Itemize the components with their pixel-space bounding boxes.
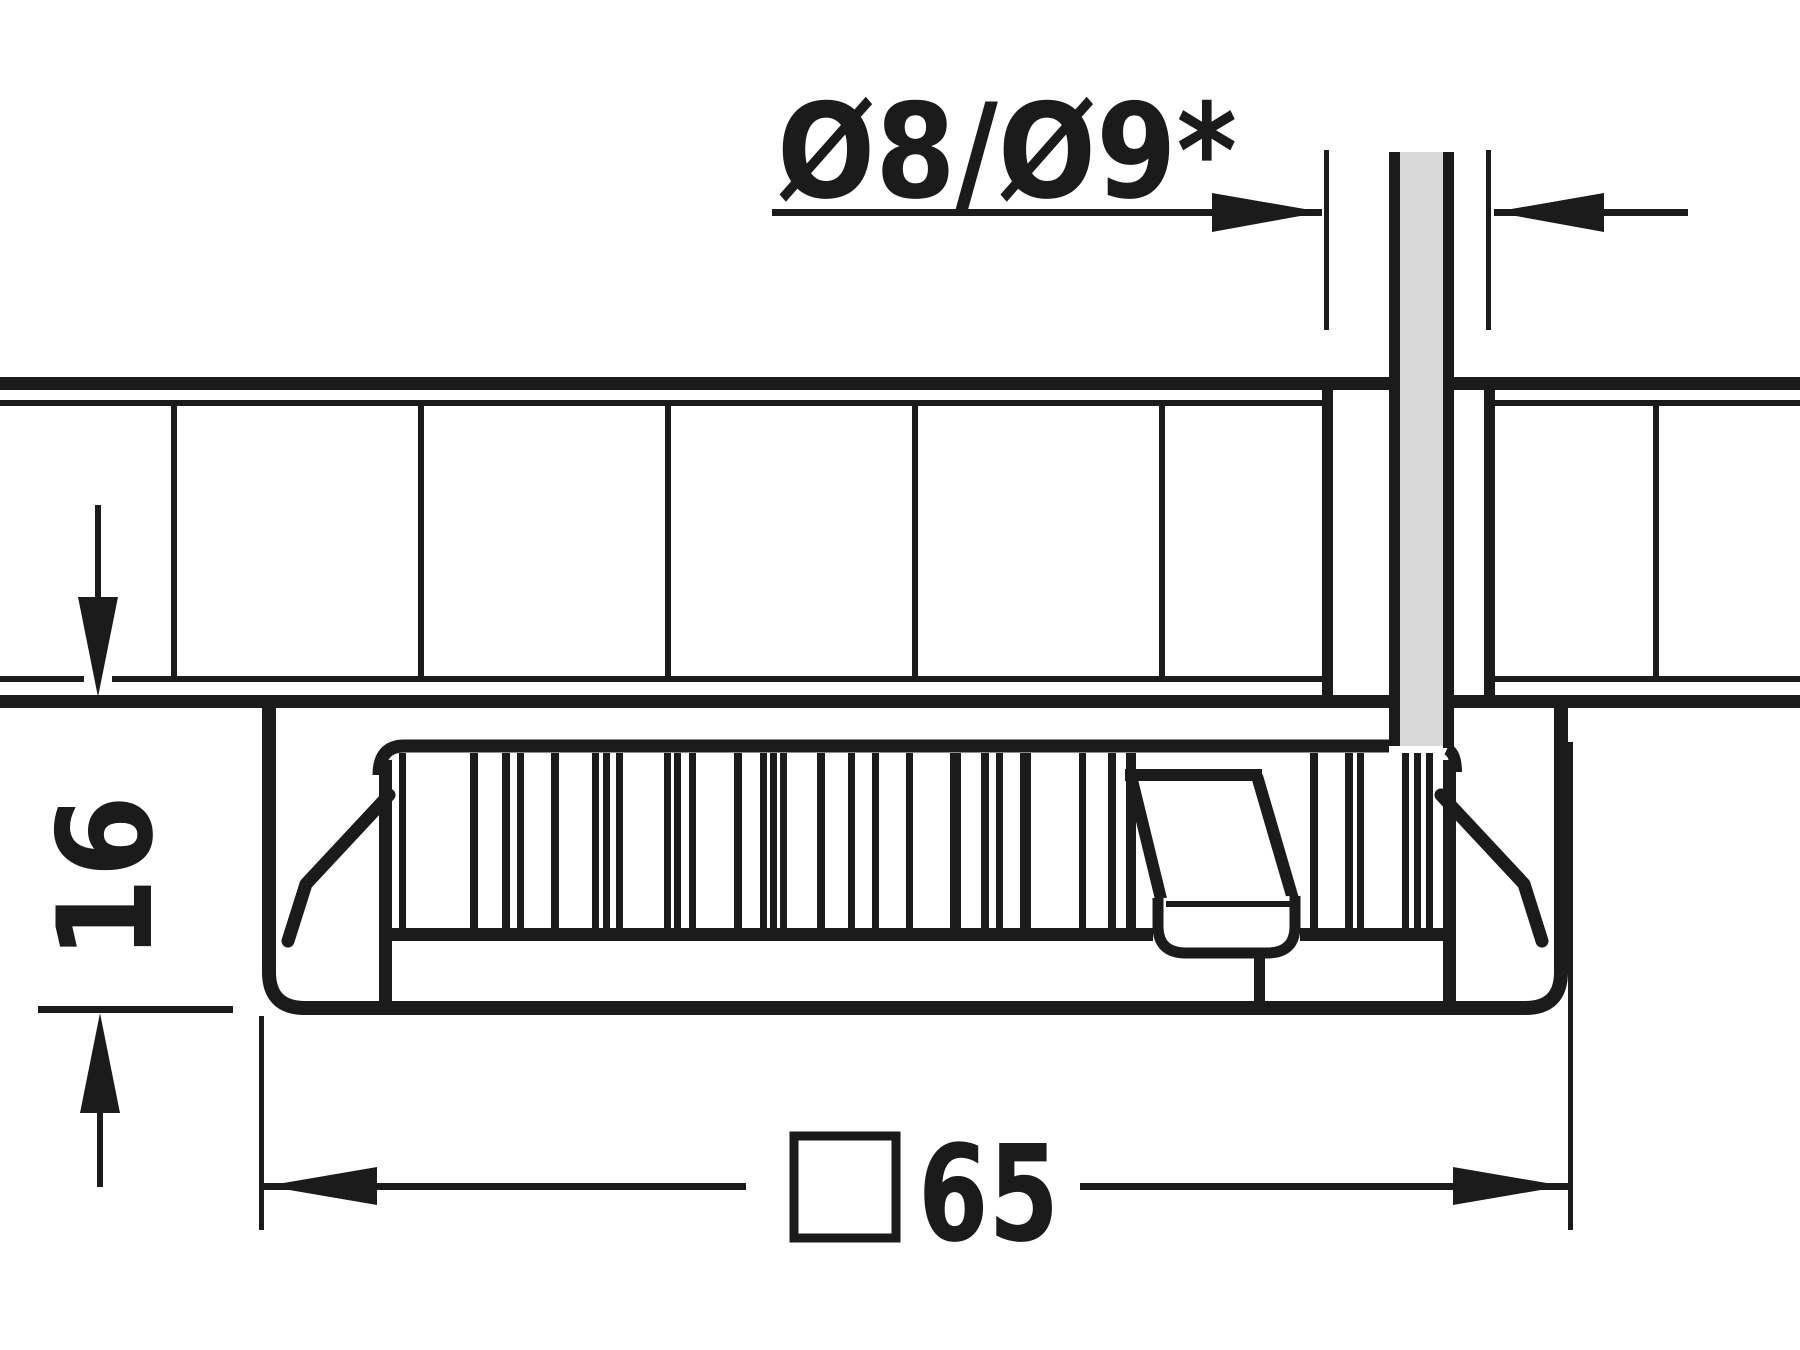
square-symbol-icon (794, 1136, 896, 1238)
rib-line (502, 753, 510, 933)
depth-dimension-text: 16 (29, 795, 182, 960)
board-divider-line (912, 403, 918, 682)
rib-line (1020, 753, 1031, 933)
rib-line (996, 753, 1003, 933)
cable-core (1400, 152, 1443, 746)
hole-dimension-text: Ø8/Ø9* (777, 75, 1237, 228)
board-divider-line (1653, 403, 1659, 682)
cable-edge-left (1389, 152, 1400, 746)
depth-arrow-top-shaft (95, 505, 101, 600)
board-bottom-inner-line-b (112, 676, 1322, 682)
board-bottom-inner-line-a (0, 676, 84, 682)
rib-line (1426, 753, 1433, 933)
rib-line (950, 753, 961, 933)
rib-line (551, 753, 559, 933)
rib-line (592, 753, 599, 933)
rib-line (470, 753, 478, 933)
board-top-inner-line-left (0, 400, 1322, 406)
rib-line (1402, 753, 1409, 933)
board-divider-line (171, 403, 177, 682)
rib-line (399, 753, 406, 933)
cable-edge-right (1443, 152, 1454, 748)
spring-clip-right (1441, 795, 1542, 941)
rib-line (664, 753, 671, 933)
width-extension-line-right (1568, 742, 1573, 1230)
rib-line (817, 753, 825, 933)
lever-foot-step-line (1166, 901, 1290, 907)
board-divider-line (418, 403, 424, 682)
rib-line (906, 753, 913, 933)
technical-drawing-page: Ø8/Ø9* 16 65 (0, 0, 1800, 1350)
board-bottom-surface-left (0, 695, 1390, 708)
depth-arrowhead-up (80, 1013, 120, 1113)
rib-line (517, 753, 524, 933)
rib-line (1414, 753, 1421, 933)
drill-hole-edge-right (1484, 385, 1495, 708)
rib-line (872, 753, 879, 933)
rib-line (770, 753, 777, 933)
board-divider-line (665, 403, 671, 682)
depth-extension-line-bottom (38, 1006, 233, 1013)
rib-line (848, 753, 855, 933)
rib-line (1079, 753, 1086, 933)
width-arrowhead-left (266, 1167, 377, 1205)
mounting-depth-dimension: 16 (29, 505, 233, 1187)
rib-line (616, 753, 623, 933)
board-bottom-surface-right (1454, 695, 1800, 708)
board-top-inner-line-right (1494, 400, 1800, 406)
connector-lever (1125, 769, 1295, 1004)
rib-line (780, 753, 787, 933)
rib-line (603, 753, 610, 933)
luminaire-fixture (269, 706, 1561, 1008)
lever-foot-stem (1254, 952, 1265, 1004)
board-top-surface-left (0, 377, 1390, 390)
board-divider-line (1159, 403, 1165, 682)
hole-diameter-dimension: Ø8/Ø9* (772, 75, 1688, 330)
rib-line (1108, 753, 1116, 933)
board-top-surface-right (1454, 377, 1800, 390)
hole-extension-line-left (1324, 150, 1329, 330)
drawing-canvas: Ø8/Ø9* 16 65 (0, 0, 1800, 1350)
rib-line (689, 753, 696, 933)
rib-line (734, 753, 742, 933)
lamp-rib-bottom-line-left (379, 928, 1153, 941)
rib-line (981, 753, 989, 933)
spring-clip-left (288, 795, 389, 941)
board-cross-section (0, 377, 1800, 708)
board-bottom-inner-line-c (1494, 676, 1800, 682)
hole-arrowhead-left-pointing (1494, 193, 1604, 232)
width-arrowhead-right (1453, 1167, 1564, 1205)
width-dimension-text: 65 (918, 1118, 1059, 1272)
rib-line (760, 753, 767, 933)
rib-line (674, 753, 681, 933)
rib-line (1345, 753, 1353, 933)
lamp-rib-bottom-line-right (1300, 928, 1456, 941)
depth-arrow-bottom-shaft (97, 1113, 103, 1187)
rib-line (1310, 753, 1318, 933)
cable-feedthrough (1389, 152, 1454, 748)
hole-extension-line-right (1486, 150, 1491, 330)
drill-hole-edge-left (1322, 385, 1333, 708)
lever-top-bar (1125, 769, 1262, 781)
rib-line (1357, 753, 1364, 933)
width-extension-line-left (259, 1016, 264, 1230)
